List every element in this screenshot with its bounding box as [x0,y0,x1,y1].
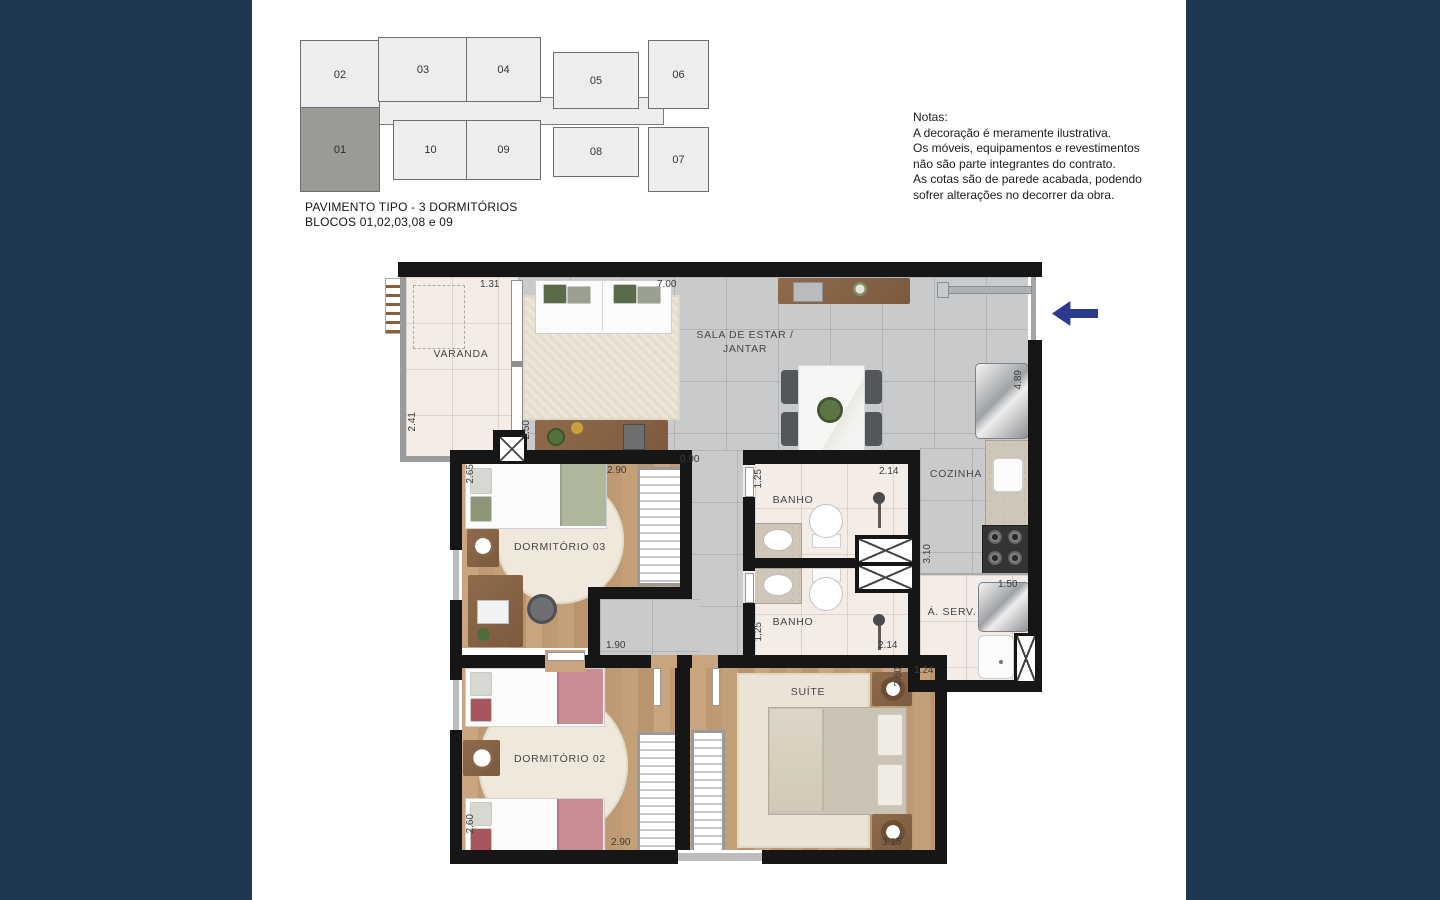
unit-label: 06 [672,69,684,81]
table-plant [817,397,843,423]
notes-line: A decoração é meramente ilustrativa. [913,126,1142,142]
notes-line: sofrer alterações no decorrer da obra. [913,188,1142,204]
dorm2-door-leaf [653,668,661,706]
wall-dorm3-jog [588,587,692,599]
banho1-sink [763,529,793,551]
sofa-cushion-line [602,282,603,330]
unit-label: 04 [497,64,509,76]
banho1-toilet [809,504,843,538]
stove-burner [988,530,1002,544]
dim-living-right: 4.89 [1013,370,1024,389]
flower-vase [853,282,867,296]
dorm3-door-leaf [547,652,585,661]
floor-plan: VARANDA SALA DE ESTAR / JANTAR COZINHA B… [385,262,1115,874]
room-label-dorm2: DORMITÓRIO 02 [514,753,606,765]
room-label-suite: SUÍTE [791,686,825,698]
unit-label: 07 [672,154,684,166]
notes-line: não são parte integrantes do contrato. [913,157,1142,173]
laptop [477,600,509,624]
banho2-door-leaf [745,573,754,603]
unit-label: 08 [590,146,602,158]
dim-dorm3-bottom: 1.90 [606,640,625,651]
dim-suite-depth: 2.60 [893,667,904,686]
dorm3-window [450,550,462,600]
stove-burner [988,551,1002,565]
wall-dorm2-suite [675,668,690,862]
dining-chair [863,370,882,404]
wall-dorm3-right [680,450,692,599]
dorm2-blanket2 [557,799,603,854]
unit-label: 03 [417,64,429,76]
dorm3-wardrobe [637,467,684,586]
stove-burner [1008,551,1022,565]
wall-mid-left [450,450,685,464]
tv [623,424,645,450]
dorm2-wardrobe [637,732,680,854]
banho2-shower-head [873,614,885,626]
dining-chair [863,412,882,446]
banho2-toilet [809,577,843,611]
dim-banho1-depth: 1.25 [753,469,764,488]
suite-pillow [877,714,903,756]
servico-shaft [1014,633,1038,684]
room-label-banho2: BANHO [773,616,814,628]
key-plan-unit-03: 03 [378,37,468,102]
dim-living-left: 2.50 [521,420,532,439]
suite-pillow [877,764,903,806]
key-plan-unit-09: 09 [466,120,541,180]
wall-mid-right [745,450,920,464]
varanda-projection-dashed [413,285,465,349]
notes-title: Notas: [913,110,1142,126]
key-plan-unit-08: 08 [553,127,639,177]
entry-door-hinge [937,282,949,298]
dim-banho2-width: 2.14 [878,640,897,651]
dim-varanda-width: 1.31 [480,279,499,290]
key-plan-unit-01-selected: 01 [300,107,380,192]
banho1-shower-stem [878,502,881,528]
key-plan-unit-06: 06 [648,40,709,109]
room-label-banho1: BANHO [773,494,814,506]
key-plan-unit-02: 02 [300,40,380,109]
dim-servico-bottom: 1.24 [914,665,933,676]
room-label-varanda: VARANDA [434,348,489,360]
notes-line: Os móveis, equipamentos e revestimentos [913,141,1142,157]
dim-banho1-width: 2.14 [879,466,898,477]
desk-chair [527,594,557,624]
banho2-sink [763,574,793,596]
plan-caption-line2: BLOCOS 01,02,03,08 e 09 [305,215,453,229]
room-label-dorm3: DORMITÓRIO 03 [514,541,606,553]
dorm2-pillow [470,672,492,696]
wall-top [398,262,1042,277]
unit-label: 02 [334,69,346,81]
entry-door-leaf [945,286,1032,294]
sofa-pillow [543,284,567,304]
dorm2-pillow [470,698,492,722]
room-label-sala-line2: JANTAR [723,343,767,355]
suite-blanket [770,709,824,811]
room-label-cozinha: COZINHA [930,468,982,480]
dim-banho2-depth: 1.25 [753,622,764,641]
key-plan-unit-10: 10 [393,120,468,180]
dim-dorm2-depth: 2.60 [465,814,476,833]
sofa-pillow [567,286,591,304]
banho1-shower-head [873,492,885,504]
plan-caption-line1: PAVIMENTO TIPO - 3 DORMITÓRIOS [305,200,517,214]
desk-plant [477,628,490,641]
room-label-servico: Á. SERV. [928,606,977,618]
unit-label: 10 [424,144,436,156]
dim-dorm3-depth: 2.65 [465,464,476,483]
unit-label: 05 [590,75,602,87]
dim-cozinha-depth: 3.10 [922,544,933,563]
dorm3-blanket [560,464,606,526]
sideboard-tray [793,282,823,302]
dim-suite-width: 3.15 [882,837,901,848]
stove-burner [1008,530,1022,544]
dim-corridor-opening: 0.90 [680,454,699,465]
dim-servico-width: 1.50 [998,579,1017,590]
kitchen-sink [993,458,1023,492]
notes-block: Notas: A decoração é meramente ilustrati… [913,110,1142,203]
banho-shaft [855,562,916,593]
dorm2-door-gap [651,655,677,668]
dorm2-window [450,680,462,730]
key-plan-unit-05: 05 [553,52,639,109]
key-plan-unit-07: 07 [648,127,709,192]
dim-varanda-depth: 2.41 [407,412,418,431]
dim-dorm3-width: 2.90 [607,465,626,476]
tank-drain [999,660,1003,664]
wall-dorm3-lower [588,587,600,662]
page-background: 02 03 04 05 06 01 10 09 08 07 PAVIMENTO … [0,0,1440,900]
varanda-railing [400,277,406,462]
notes-line: As cotas são de parede acabada, podendo [913,172,1142,188]
dorm2-blanket1 [557,669,603,724]
suite-door-leaf [712,668,720,706]
room-label-sala-line1: SALA DE ESTAR / [696,329,793,341]
key-plan-unit-04: 04 [466,37,541,102]
plant [547,428,565,446]
sofa-pillow [613,284,637,304]
dim-dorm2-width: 2.90 [611,837,630,848]
kitchen-servico-line [920,573,1028,575]
laundry-tank [978,635,1014,679]
suite-door-gap [692,655,718,668]
clock [473,536,493,556]
dorm3-pillow [470,496,492,522]
unit-label: 09 [497,144,509,156]
decor-bowl [571,422,583,434]
clock [471,747,493,769]
suite-wardrobe [691,730,725,854]
dim-living-width: 7.00 [657,279,676,290]
unit-label: 01 [334,144,346,156]
suite-window [678,850,762,864]
